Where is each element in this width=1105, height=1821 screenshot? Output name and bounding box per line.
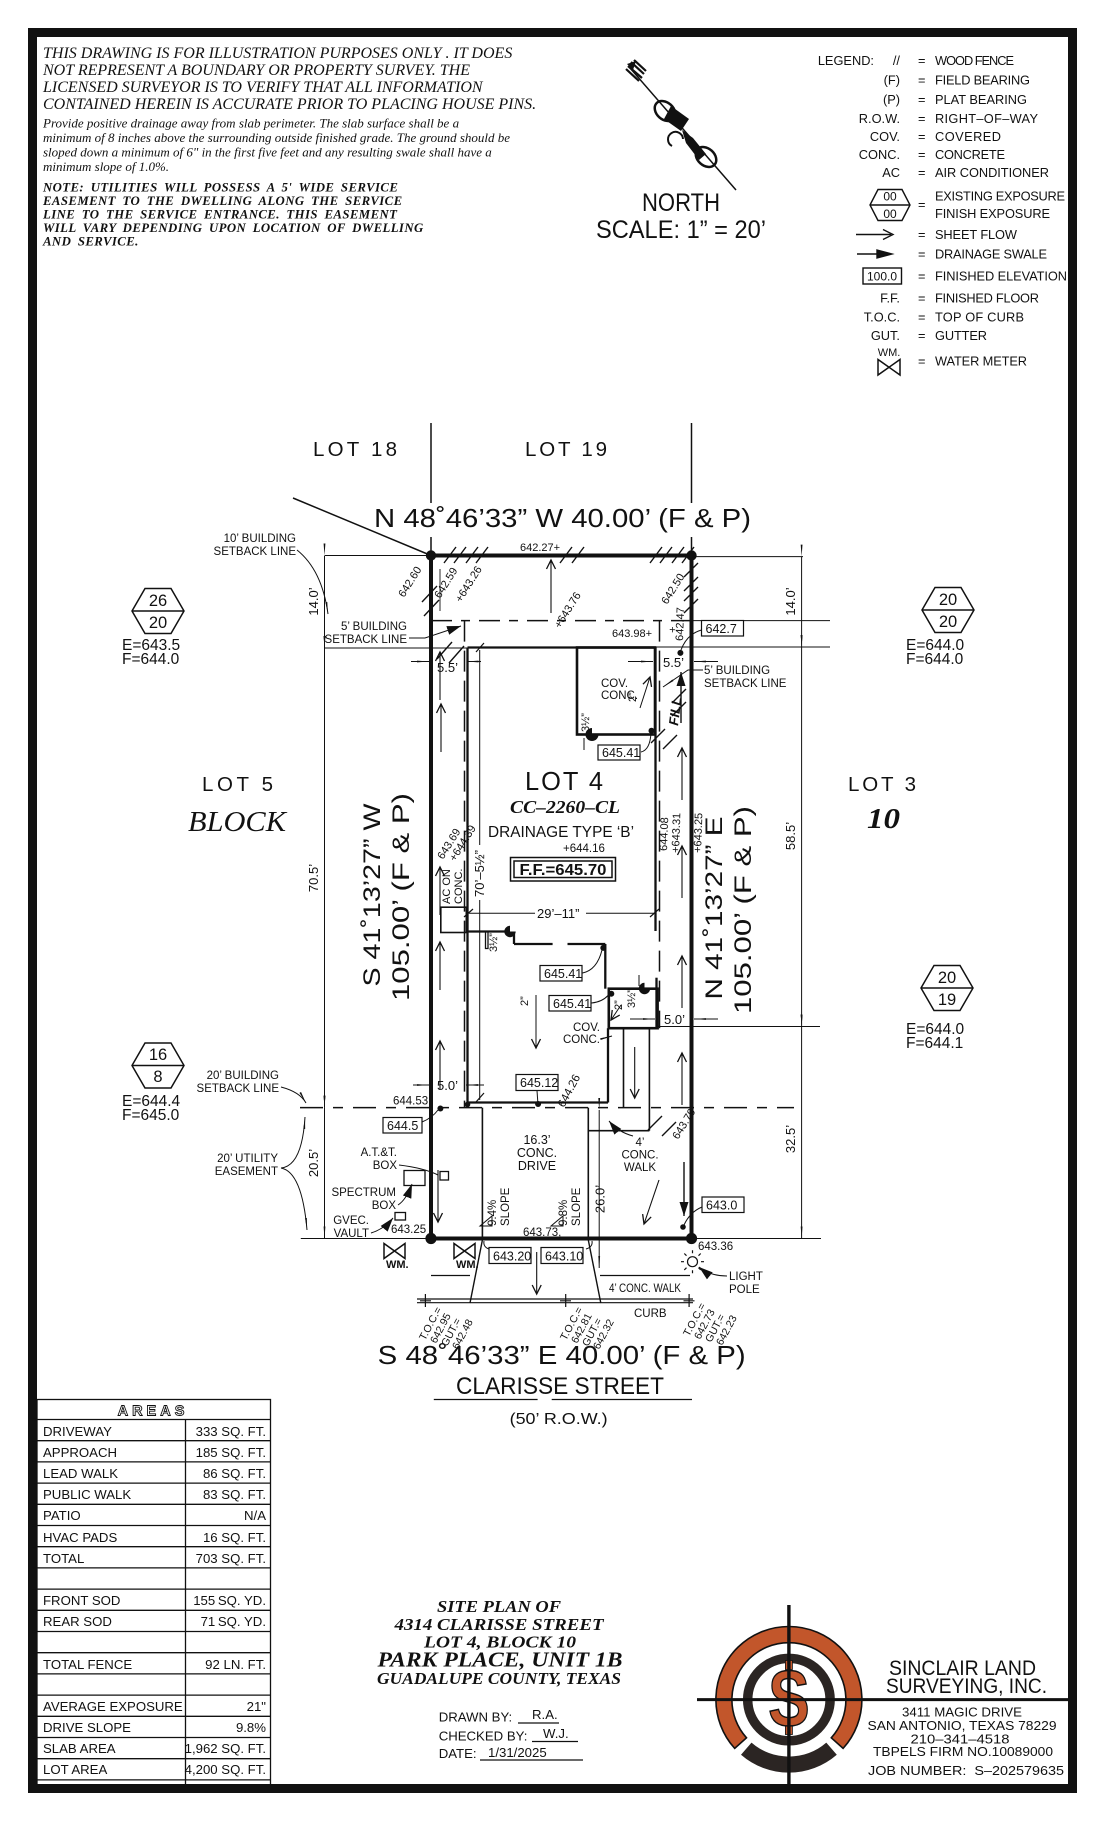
svg-text:F=644.1: F=644.1 bbox=[906, 1035, 963, 1052]
svg-text:26.0’: 26.0’ bbox=[593, 1185, 608, 1213]
svg-text:HVAC PADS: HVAC PADS bbox=[43, 1530, 117, 1545]
svg-text:LOT 4: LOT 4 bbox=[525, 766, 605, 796]
svg-text:GUT.: GUT. bbox=[871, 328, 900, 343]
svg-text:TOTAL: TOTAL bbox=[43, 1551, 84, 1566]
svg-text:+644.16: +644.16 bbox=[563, 843, 605, 855]
svg-text:F=644.0: F=644.0 bbox=[906, 651, 964, 668]
svg-text:3½”: 3½” bbox=[626, 989, 638, 1008]
svg-text:FINISH EXPOSURE: FINISH EXPOSURE bbox=[935, 206, 1050, 221]
svg-text:9.4%: 9.4% bbox=[487, 1200, 499, 1226]
svg-text:644.5: 644.5 bbox=[387, 1119, 418, 1133]
svg-text:20: 20 bbox=[149, 614, 167, 632]
svg-text:DRIVE: DRIVE bbox=[518, 1159, 556, 1173]
svg-text:643.20: 643.20 bbox=[493, 1250, 531, 1264]
svg-text:=: = bbox=[918, 197, 925, 212]
svg-text:CLARISSE STREET: CLARISSE STREET bbox=[456, 1373, 664, 1400]
svg-text:642.47: 642.47 bbox=[674, 607, 687, 641]
svg-text:FINISHED FLOOR: FINISHED FLOOR bbox=[935, 291, 1039, 306]
svg-text:643.0: 643.0 bbox=[706, 1199, 737, 1213]
svg-text:2”: 2” bbox=[627, 692, 639, 702]
svg-text:16 SQ. FT.: 16 SQ. FT. bbox=[203, 1530, 266, 1545]
svg-text:R.O.W.: R.O.W. bbox=[859, 111, 900, 126]
svg-text:CURB: CURB bbox=[634, 1308, 667, 1320]
svg-text://: // bbox=[893, 53, 901, 68]
svg-text:SLAB AREA: SLAB AREA bbox=[43, 1741, 116, 1756]
svg-text:EASEMENT: EASEMENT bbox=[215, 1166, 278, 1178]
svg-text:DRIVE SLOPE: DRIVE SLOPE bbox=[43, 1720, 131, 1735]
svg-text:20: 20 bbox=[939, 613, 957, 631]
svg-text:100.0: 100.0 bbox=[867, 270, 897, 284]
svg-text:4’ CONC. WALK: 4’ CONC. WALK bbox=[609, 1283, 681, 1295]
svg-text:W.J.: W.J. bbox=[543, 1726, 569, 1741]
svg-text:DRIVEWAY: DRIVEWAY bbox=[43, 1424, 112, 1439]
svg-text:=: = bbox=[918, 53, 925, 68]
svg-text:F.F.=645.70: F.F.=645.70 bbox=[520, 862, 607, 879]
svg-text:R.A.: R.A. bbox=[532, 1707, 558, 1722]
svg-text:TOP OF CURB: TOP OF CURB bbox=[935, 310, 1024, 325]
svg-text:+: + bbox=[667, 626, 679, 633]
svg-text:PLAT BEARING: PLAT BEARING bbox=[935, 92, 1027, 107]
svg-text:5.5’: 5.5’ bbox=[663, 655, 684, 670]
svg-text:LOT 3: LOT 3 bbox=[848, 773, 916, 796]
svg-text:POLE: POLE bbox=[729, 1284, 760, 1296]
svg-text:=: = bbox=[918, 310, 925, 325]
svg-text:LICENSED SURVEYOR IS TO VERIFY: LICENSED SURVEYOR IS TO VERIFY THAT ALL … bbox=[42, 79, 484, 96]
svg-text:185 SQ. FT.: 185 SQ. FT. bbox=[196, 1445, 266, 1460]
svg-text:BOX: BOX bbox=[373, 1160, 398, 1172]
svg-text:16: 16 bbox=[149, 1046, 167, 1064]
svg-text:CONCRETE: CONCRETE bbox=[935, 147, 1005, 162]
svg-text:JOB NUMBER: S–202579635: JOB NUMBER: S–202579635 bbox=[868, 1763, 1064, 1778]
svg-text:(P): (P) bbox=[883, 92, 900, 107]
svg-text:AIR CONDITIONER: AIR CONDITIONER bbox=[935, 165, 1049, 180]
svg-text:Provide positive drainage away: Provide positive drainage away from slab… bbox=[42, 116, 460, 131]
svg-text:70’–5½”: 70’–5½” bbox=[472, 850, 487, 897]
svg-text:SLOPE: SLOPE bbox=[571, 1187, 583, 1226]
svg-text:A.T.&T.: A.T.&T. bbox=[361, 1147, 397, 1159]
svg-text:14.0’: 14.0’ bbox=[306, 587, 321, 615]
svg-text:3½”: 3½” bbox=[488, 933, 500, 952]
svg-text:EXISTING EXPOSURE: EXISTING EXPOSURE bbox=[935, 189, 1065, 204]
svg-text:SETBACK LINE: SETBACK LINE bbox=[704, 678, 787, 690]
svg-text:COV.: COV. bbox=[573, 1022, 600, 1034]
svg-text:(F): (F) bbox=[884, 73, 900, 88]
svg-text:GUADALUPE COUNTY, TEXAS: GUADALUPE COUNTY, TEXAS bbox=[377, 1669, 621, 1688]
svg-text:LINE TO THE SERVICE ENTRANCE.: LINE TO THE SERVICE ENTRANCE. THIS EASEM… bbox=[42, 208, 398, 222]
svg-text:CONC.: CONC. bbox=[621, 1150, 658, 1162]
svg-text:=: = bbox=[918, 269, 925, 284]
svg-text:RIGHT–OF–WAY: RIGHT–OF–WAY bbox=[935, 111, 1038, 126]
svg-text:CONC.: CONC. bbox=[859, 147, 900, 162]
svg-text:=: = bbox=[918, 328, 925, 343]
svg-text:26: 26 bbox=[149, 592, 167, 610]
svg-text:71 SQ. YD.: 71 SQ. YD. bbox=[201, 1614, 266, 1629]
svg-text:=: = bbox=[918, 147, 925, 162]
svg-text:20.5’: 20.5’ bbox=[306, 1149, 321, 1177]
svg-text:DRAWN BY:: DRAWN BY: bbox=[439, 1710, 513, 1725]
svg-text:10’ BUILDING: 10’ BUILDING bbox=[224, 533, 296, 545]
svg-text:333 SQ. FT.: 333 SQ. FT. bbox=[196, 1424, 266, 1439]
svg-text:=: = bbox=[918, 73, 925, 88]
svg-text:minimum slope of 1.0%.: minimum slope of 1.0%. bbox=[43, 159, 169, 174]
svg-text:CONTAINED HEREIN IS ACCURATE P: CONTAINED HEREIN IS ACCURATE PRIOR TO PL… bbox=[43, 96, 536, 113]
svg-text:AVERAGE EXPOSURE: AVERAGE EXPOSURE bbox=[43, 1699, 183, 1714]
svg-text:10: 10 bbox=[867, 804, 900, 835]
svg-text:642.27+: 642.27+ bbox=[520, 542, 560, 554]
svg-text:F=644.0: F=644.0 bbox=[122, 651, 180, 668]
svg-text:WOOD FENCE: WOOD FENCE bbox=[935, 53, 1014, 68]
svg-text:645.12: 645.12 bbox=[520, 1076, 558, 1090]
svg-text:GUTTER: GUTTER bbox=[935, 328, 987, 343]
svg-text:FRONT SOD: FRONT SOD bbox=[43, 1593, 120, 1608]
svg-text:BLOCK: BLOCK bbox=[188, 806, 288, 838]
svg-text:SPECTRUM: SPECTRUM bbox=[331, 1187, 396, 1199]
svg-text:643.98+: 643.98+ bbox=[612, 628, 652, 640]
svg-text:20’ BUILDING: 20’ BUILDING bbox=[207, 1070, 279, 1082]
svg-text:1/31/2025: 1/31/2025 bbox=[488, 1745, 547, 1760]
svg-text:EASEMENT TO THE DWELLING ALONG: EASEMENT TO THE DWELLING ALONG THE SERVI… bbox=[42, 194, 403, 208]
svg-text:SCALE: 1” = 20’: SCALE: 1” = 20’ bbox=[596, 216, 766, 244]
svg-text:CHECKED BY:: CHECKED BY: bbox=[439, 1729, 528, 1744]
svg-text:29’–11”: 29’–11” bbox=[537, 906, 579, 921]
svg-text:643.36: 643.36 bbox=[698, 1241, 733, 1253]
svg-text:S 41˚13’27” W: S 41˚13’27” W bbox=[359, 803, 386, 986]
svg-text:TOTAL FENCE: TOTAL FENCE bbox=[43, 1657, 132, 1672]
svg-text:58.5’: 58.5’ bbox=[783, 822, 798, 850]
svg-text:+643.31: +643.31 bbox=[670, 813, 683, 853]
svg-text:5’ BUILDING: 5’ BUILDING bbox=[341, 621, 407, 633]
svg-text:WILL VARY DEPENDING UPON LOCAT: WILL VARY DEPENDING UPON LOCATION OF DWE… bbox=[43, 221, 424, 235]
svg-text:SETBACK LINE: SETBACK LINE bbox=[214, 546, 297, 558]
svg-text:THIS DRAWING IS FOR ILLUSTRATI: THIS DRAWING IS FOR ILLUSTRATION PURPOSE… bbox=[43, 45, 512, 62]
svg-text:PUBLIC WALK: PUBLIC WALK bbox=[43, 1487, 131, 1502]
svg-text:VAULT: VAULT bbox=[334, 1228, 369, 1240]
svg-text:642.7: 642.7 bbox=[706, 622, 737, 636]
svg-text:92 LN. FT.: 92 LN. FT. bbox=[205, 1657, 266, 1672]
svg-text:WM.: WM. bbox=[456, 1259, 479, 1271]
svg-text:155 SQ. YD.: 155 SQ. YD. bbox=[193, 1593, 266, 1608]
svg-text:1,962 SQ. FT.: 1,962 SQ. FT. bbox=[185, 1741, 266, 1756]
svg-text:LEGEND:: LEGEND: bbox=[818, 53, 874, 68]
svg-text:CONC.: CONC. bbox=[517, 1146, 557, 1160]
svg-text:86 SQ. FT.: 86 SQ. FT. bbox=[203, 1466, 266, 1481]
svg-text:WM.: WM. bbox=[386, 1259, 409, 1271]
svg-text:REAR SOD: REAR SOD bbox=[43, 1614, 112, 1629]
svg-text:WM.: WM. bbox=[878, 347, 901, 359]
svg-text:LOT 5: LOT 5 bbox=[202, 773, 273, 796]
svg-text:644.53: 644.53 bbox=[393, 1096, 428, 1108]
svg-text:105.00’ (F & P): 105.00’ (F & P) bbox=[388, 793, 415, 1001]
svg-text:643.10: 643.10 bbox=[545, 1250, 583, 1264]
svg-text:APPROACH: APPROACH bbox=[43, 1445, 117, 1460]
svg-text:DRAINAGE TYPE ‘B’: DRAINAGE TYPE ‘B’ bbox=[488, 824, 634, 841]
svg-text:00: 00 bbox=[883, 190, 897, 204]
svg-text:16.3’: 16.3’ bbox=[523, 1133, 550, 1147]
svg-text:SETBACK LINE: SETBACK LINE bbox=[197, 1083, 280, 1095]
svg-text:=: = bbox=[918, 165, 925, 180]
svg-text:S 48˚46’33” E 40.00’ (F & P): S 48˚46’33” E 40.00’ (F & P) bbox=[378, 1342, 746, 1370]
svg-text:AC: AC bbox=[882, 165, 900, 180]
svg-text:8: 8 bbox=[153, 1068, 162, 1086]
svg-text:20’ UTILITY: 20’ UTILITY bbox=[217, 1153, 278, 1165]
svg-text:(50’ R.O.W.): (50’ R.O.W.) bbox=[510, 1411, 608, 1428]
svg-text:CC–2260–CL: CC–2260–CL bbox=[510, 797, 620, 817]
svg-text:AREAS: AREAS bbox=[118, 1404, 189, 1420]
svg-text:COVERED: COVERED bbox=[935, 129, 1001, 144]
svg-text:CONC.: CONC. bbox=[563, 1034, 600, 1046]
svg-text:643.73,: 643.73, bbox=[523, 1227, 561, 1239]
svg-text:AND SERVICE.: AND SERVICE. bbox=[42, 235, 139, 249]
svg-text:5.0’: 5.0’ bbox=[664, 1012, 685, 1027]
svg-text:=: = bbox=[918, 291, 925, 306]
svg-text:WATER METER: WATER METER bbox=[935, 354, 1027, 369]
svg-text:=: = bbox=[918, 92, 925, 107]
svg-text:COV.: COV. bbox=[870, 129, 900, 144]
svg-text:105.00’ (F & P): 105.00’ (F & P) bbox=[730, 806, 757, 1014]
svg-text:20: 20 bbox=[939, 591, 957, 609]
svg-text:PARK PLACE, UNIT 1B: PARK PLACE, UNIT 1B bbox=[376, 1648, 622, 1672]
svg-text:LOT AREA: LOT AREA bbox=[43, 1762, 107, 1777]
svg-text:BOX: BOX bbox=[372, 1200, 397, 1212]
svg-text:21": 21" bbox=[247, 1699, 267, 1714]
svg-text:NOTE: UTILITIES WILL POSSESS A: NOTE: UTILITIES WILL POSSESS A 5' WIDE S… bbox=[42, 181, 398, 195]
svg-text:T.O.C.: T.O.C. bbox=[864, 310, 900, 325]
svg-text:644.08: 644.08 bbox=[658, 817, 671, 851]
svg-text:sloped down a minimum of 6" in: sloped down a minimum of 6" in the first… bbox=[43, 145, 492, 160]
svg-text:=: = bbox=[918, 227, 925, 242]
svg-text:N 48˚46’33” W 40.00’ (F & P): N 48˚46’33” W 40.00’ (F & P) bbox=[374, 505, 751, 533]
svg-text:=: = bbox=[918, 129, 925, 144]
svg-text:DATE:: DATE: bbox=[439, 1746, 477, 1761]
svg-text:SHEET FLOW: SHEET FLOW bbox=[935, 227, 1018, 242]
svg-text:20: 20 bbox=[938, 969, 956, 987]
svg-text:COV.: COV. bbox=[601, 678, 628, 690]
svg-text:9.8%: 9.8% bbox=[558, 1200, 570, 1226]
svg-text:70.5’: 70.5’ bbox=[306, 864, 321, 892]
svg-text:F.F.: F.F. bbox=[880, 291, 900, 306]
svg-text:3½”: 3½” bbox=[580, 713, 592, 732]
svg-text:GVEC.: GVEC. bbox=[333, 1215, 369, 1227]
svg-text:2”: 2” bbox=[519, 996, 531, 1006]
svg-text:=: = bbox=[918, 111, 925, 126]
svg-text:9.8%: 9.8% bbox=[236, 1720, 266, 1735]
svg-text:AC ON: AC ON bbox=[441, 869, 453, 904]
svg-text:FIELD BEARING: FIELD BEARING bbox=[935, 73, 1030, 88]
svg-text:19: 19 bbox=[938, 991, 956, 1009]
svg-text:LIGHT: LIGHT bbox=[729, 1271, 763, 1283]
svg-text:83 SQ. FT.: 83 SQ. FT. bbox=[203, 1487, 266, 1502]
svg-text:32.5’: 32.5’ bbox=[783, 1125, 798, 1153]
svg-text:14.0’: 14.0’ bbox=[783, 587, 798, 615]
svg-text:00: 00 bbox=[883, 207, 897, 221]
svg-text:TBPELS FIRM NO.10089000: TBPELS FIRM NO.10089000 bbox=[873, 1744, 1053, 1759]
svg-text:645.41: 645.41 bbox=[544, 967, 582, 981]
svg-text:CONC.: CONC. bbox=[453, 869, 465, 904]
svg-text:WALK: WALK bbox=[624, 1162, 656, 1174]
svg-text:PATIO: PATIO bbox=[43, 1508, 81, 1523]
svg-text:645.41: 645.41 bbox=[602, 746, 640, 760]
svg-text:SURVEYING, INC.: SURVEYING, INC. bbox=[886, 1675, 1047, 1698]
svg-text:F=645.0: F=645.0 bbox=[122, 1107, 180, 1124]
svg-text:645.41: 645.41 bbox=[553, 997, 591, 1011]
svg-text:5’ BUILDING: 5’ BUILDING bbox=[704, 665, 770, 677]
svg-text:SETBACK LINE: SETBACK LINE bbox=[325, 634, 408, 646]
svg-text:LEAD WALK: LEAD WALK bbox=[43, 1466, 118, 1481]
svg-text:N/A: N/A bbox=[244, 1508, 266, 1523]
svg-text:4314 CLARISSE STREET: 4314 CLARISSE STREET bbox=[393, 1615, 604, 1634]
svg-text:=: = bbox=[918, 354, 925, 369]
svg-text:FINISHED ELEVATION: FINISHED ELEVATION bbox=[935, 269, 1067, 284]
svg-text:643.25: 643.25 bbox=[391, 1224, 426, 1236]
svg-text:N 41˚13’27” E: N 41˚13’27” E bbox=[701, 817, 728, 1000]
svg-text:NORTH: NORTH bbox=[642, 189, 720, 217]
svg-text:4’: 4’ bbox=[636, 1137, 645, 1149]
svg-text:SLOPE: SLOPE bbox=[500, 1187, 512, 1226]
svg-text:=: = bbox=[918, 247, 925, 262]
svg-text:4,200 SQ. FT.: 4,200 SQ. FT. bbox=[185, 1762, 266, 1777]
svg-text:703 SQ. FT.: 703 SQ. FT. bbox=[196, 1551, 266, 1566]
svg-text:NOT REPRESENT A BOUNDARY OR PR: NOT REPRESENT A BOUNDARY OR PROPERTY SUR… bbox=[42, 62, 470, 79]
svg-text:SITE PLAN OF: SITE PLAN OF bbox=[437, 1597, 561, 1616]
svg-text:DRAINAGE SWALE: DRAINAGE SWALE bbox=[935, 247, 1047, 262]
svg-text:minimum of 8 inches above the: minimum of 8 inches above the surroundin… bbox=[43, 130, 510, 145]
